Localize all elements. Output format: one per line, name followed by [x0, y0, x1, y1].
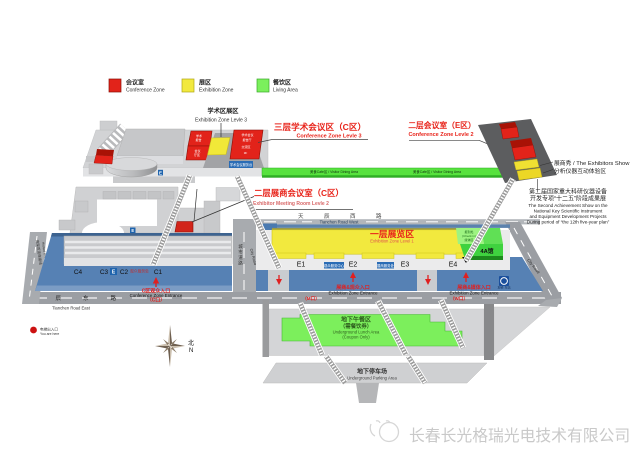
svg-text:一层展览区: 一层展览区	[370, 228, 414, 239]
svg-text:(Coupon Only): (Coupon Only)	[342, 335, 370, 340]
svg-text:学术区展区: 学术区展区	[208, 107, 240, 115]
svg-text:Underground Parking Area: Underground Parking Area	[347, 376, 397, 381]
svg-text:报告: 报告	[195, 137, 201, 142]
svg-text:E3: E3	[401, 262, 410, 269]
svg-text:C4: C4	[74, 269, 83, 276]
svg-text:Exhibition Zone Entrance: Exhibition Zone Entrance	[449, 291, 499, 296]
svg-text:观众服务中心: 观众服务中心	[324, 263, 345, 268]
svg-text:During period of “the 12th fiv: During period of “the 12th five-year pla…	[527, 220, 610, 225]
svg-text:C1: C1	[154, 269, 163, 276]
svg-text:Exhibition Zone Entrance: Exhibition Zone Entrance	[328, 291, 378, 296]
svg-text:E1: E1	[297, 262, 306, 269]
svg-text:The Second Achievement Show on: The Second Achievement Show on the	[528, 203, 608, 208]
svg-text:地下停车场: 地下停车场	[357, 368, 387, 376]
svg-text:Conference Zone Levle 3: Conference Zone Levle 3	[296, 134, 361, 140]
svg-text:厅区: 厅区	[194, 153, 200, 157]
svg-text:美食Cafe区 / Visitor Dining Area: 美食Cafe区 / Visitor Dining Area	[310, 169, 358, 174]
svg-text:长春长光格瑞光电技术有限公司: 长春长光格瑞光电技术有限公司	[409, 427, 630, 445]
svg-text:Tianchen Road West: Tianchen Road West	[320, 219, 360, 224]
svg-text:E: E	[159, 171, 162, 176]
svg-text:Exhibition Zone: Exhibition Zone	[199, 88, 234, 94]
svg-text:C3: C3	[100, 269, 109, 276]
svg-text:天辰东路: 天辰东路	[28, 294, 138, 302]
svg-text:Exhibitor Meeting Room Levle 2: Exhibitor Meeting Room Levle 2	[253, 201, 329, 207]
svg-text:第二届国家重大科研仪器设备: 第二届国家重大科研仪器设备	[529, 188, 607, 196]
svg-text:展商服务处: 展商服务处	[377, 263, 395, 268]
svg-text:电梯出入口: 电梯出入口	[40, 327, 58, 332]
svg-text:地铁·东站: 地铁·东站	[498, 285, 511, 290]
svg-text:Living Area: Living Area	[273, 88, 298, 94]
svg-text:分析仪器互动体验区: 分析仪器互动体验区	[554, 167, 606, 175]
svg-text:C2: C2	[120, 269, 129, 276]
svg-text:Exhibition Zone Level 1: Exhibition Zone Level 1	[370, 239, 414, 244]
svg-text:城市道路: 城市道路	[238, 243, 244, 267]
svg-text:E4: E4	[449, 262, 458, 269]
svg-text:You are here: You are here	[40, 332, 59, 336]
svg-text:3F: 3F	[244, 151, 248, 155]
svg-text:观众服务处: 观众服务处	[130, 269, 149, 274]
svg-text:北: 北	[188, 339, 194, 347]
svg-text:美食Cafe区 / Visitor Dining Area: 美食Cafe区 / Visitor Dining Area	[413, 169, 461, 174]
svg-text:N: N	[189, 348, 193, 354]
svg-text:Exhibition Zone Levle 3: Exhibition Zone Levle 3	[195, 118, 247, 124]
svg-text:会议室: 会议室	[126, 79, 144, 87]
svg-text:餐饮区: 餐饮区	[272, 79, 291, 87]
svg-text:学术会议: 学术会议	[241, 132, 253, 137]
svg-text:4A馆: 4A馆	[480, 247, 493, 255]
svg-text:二层会议室（E区）: 二层会议室（E区）	[408, 120, 476, 130]
svg-text:E: E	[131, 228, 134, 233]
svg-text:National Key Scientific Instru: National Key Scientific Instrument	[534, 209, 603, 214]
svg-text:（C口）: （C口）	[147, 298, 166, 304]
svg-text:展区: 展区	[199, 79, 211, 87]
svg-text:地下午餐区: 地下午餐区	[341, 316, 371, 324]
svg-text:开发专项“十二五”阶段成果展: 开发专项“十二五”阶段成果展	[530, 195, 606, 203]
svg-text:学术会议服务台: 学术会议服务台	[230, 162, 252, 167]
svg-text:Tianchen Road East: Tianchen Road East	[52, 306, 91, 311]
svg-text:展商秀 / The Exhibitors Show: 展商秀 / The Exhibitors Show	[554, 159, 630, 167]
svg-text:交流区: 交流区	[241, 144, 250, 149]
svg-text:报告厅: 报告厅	[242, 137, 251, 142]
svg-text:三层学术会议区（C区）: 三层学术会议区（C区）	[274, 121, 366, 132]
svg-text:Conference Zone: Conference Zone	[126, 88, 165, 94]
svg-text:二层展商会议室（C区）: 二层展商会议室（C区）	[254, 188, 344, 198]
svg-text:E2: E2	[349, 262, 358, 269]
svg-text:and Equipment Development Proj: and Equipment Development Projects	[529, 214, 607, 219]
svg-text:Conference Zone Levle 2: Conference Zone Levle 2	[408, 132, 473, 138]
svg-text:媒体区: 媒体区	[464, 237, 473, 242]
